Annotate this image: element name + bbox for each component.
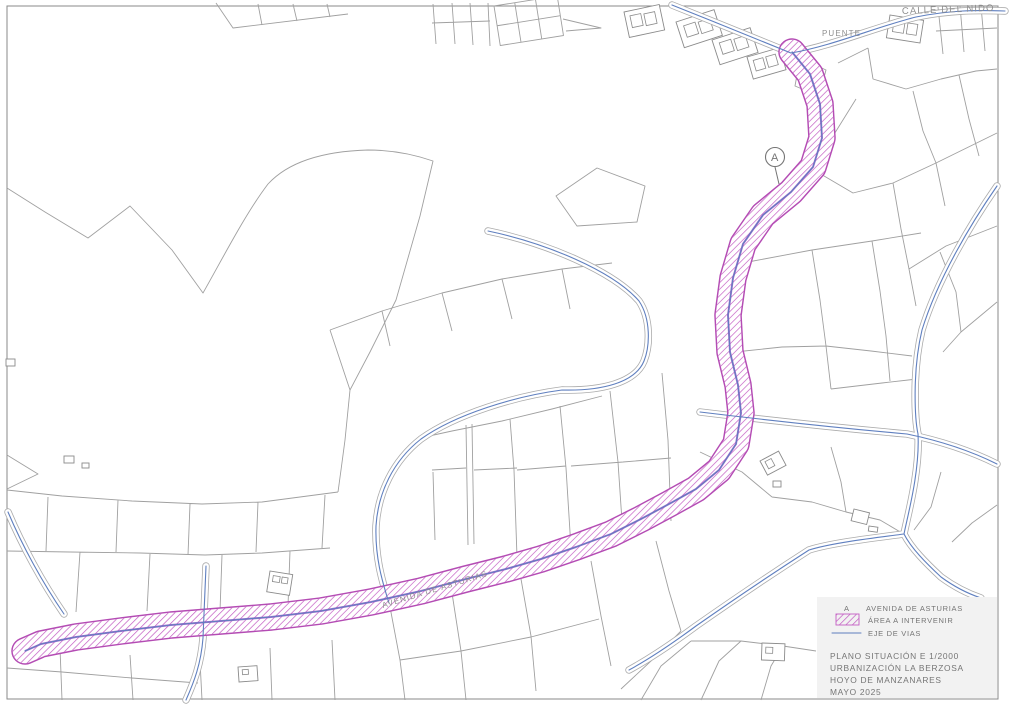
street-label-calle-del-nido: CALLE DEL NIDO bbox=[902, 3, 995, 17]
street-labels: CALLE DEL NIDO PUENTE AVENIDA DE ASTURIA… bbox=[381, 3, 995, 610]
legend-area-swatch-icon bbox=[836, 614, 859, 625]
area-edge-band bbox=[25, 52, 822, 651]
street-label-puente: PUENTE bbox=[822, 29, 861, 38]
parcel-boundary-open-area bbox=[7, 150, 433, 492]
marker-a: A bbox=[766, 148, 785, 185]
legend-avenida-label: AVENIDA DE ASTURIAS bbox=[866, 604, 963, 613]
parcel-grid-lines bbox=[494, 0, 563, 46]
road-fill bbox=[904, 186, 997, 598]
axis-lines bbox=[8, 5, 1005, 700]
legend-area-label: ÁREA A INTERVENIR bbox=[868, 616, 954, 625]
marker-a-letter: A bbox=[771, 152, 779, 164]
legend-avenida-symbol: A bbox=[844, 604, 850, 613]
parcel-lines-bottom-center bbox=[390, 541, 816, 700]
parcel-grid-outline bbox=[494, 0, 563, 46]
parcel-grid-rotated bbox=[494, 0, 563, 46]
building bbox=[760, 451, 786, 475]
building bbox=[761, 643, 785, 661]
building bbox=[624, 5, 665, 38]
parcel-lines-top bbox=[216, 3, 997, 306]
building bbox=[6, 359, 15, 366]
intervention-area-road bbox=[25, 52, 822, 651]
legend-title-line-3: HOYO DE MANZANARES bbox=[830, 675, 942, 685]
legend: A AVENIDA DE ASTURIAS ÁREA A INTERVENIR … bbox=[817, 597, 997, 698]
area-axis-purple bbox=[25, 52, 822, 651]
building bbox=[82, 463, 89, 468]
building bbox=[773, 481, 781, 487]
legend-title-line-1: PLANO SITUACIÓN E 1/2000 bbox=[830, 651, 959, 661]
building bbox=[851, 509, 869, 525]
building bbox=[64, 456, 74, 463]
area-hatch-band bbox=[25, 52, 822, 651]
legend-title-line-4: MAYO 2025 bbox=[830, 687, 881, 697]
legend-title-line-2: URBANIZACIÓN LA BERZOSA bbox=[830, 663, 964, 673]
situation-plan-map: A CALLE DEL NIDO PUENTE AVENIDA DE ASTUR… bbox=[0, 0, 1030, 712]
area-inner-band bbox=[25, 52, 822, 651]
building bbox=[267, 571, 293, 595]
eje-avenida bbox=[25, 52, 822, 651]
building bbox=[238, 666, 258, 682]
marker-a-leader bbox=[775, 167, 779, 184]
street-corridors bbox=[8, 5, 1005, 700]
parcel-lines bbox=[7, 0, 997, 700]
building bbox=[868, 526, 878, 532]
legend-eje-label: EJE DE VIAS bbox=[868, 629, 921, 638]
situation-plan-page: A CALLE DEL NIDO PUENTE AVENIDA DE ASTUR… bbox=[0, 0, 1030, 712]
